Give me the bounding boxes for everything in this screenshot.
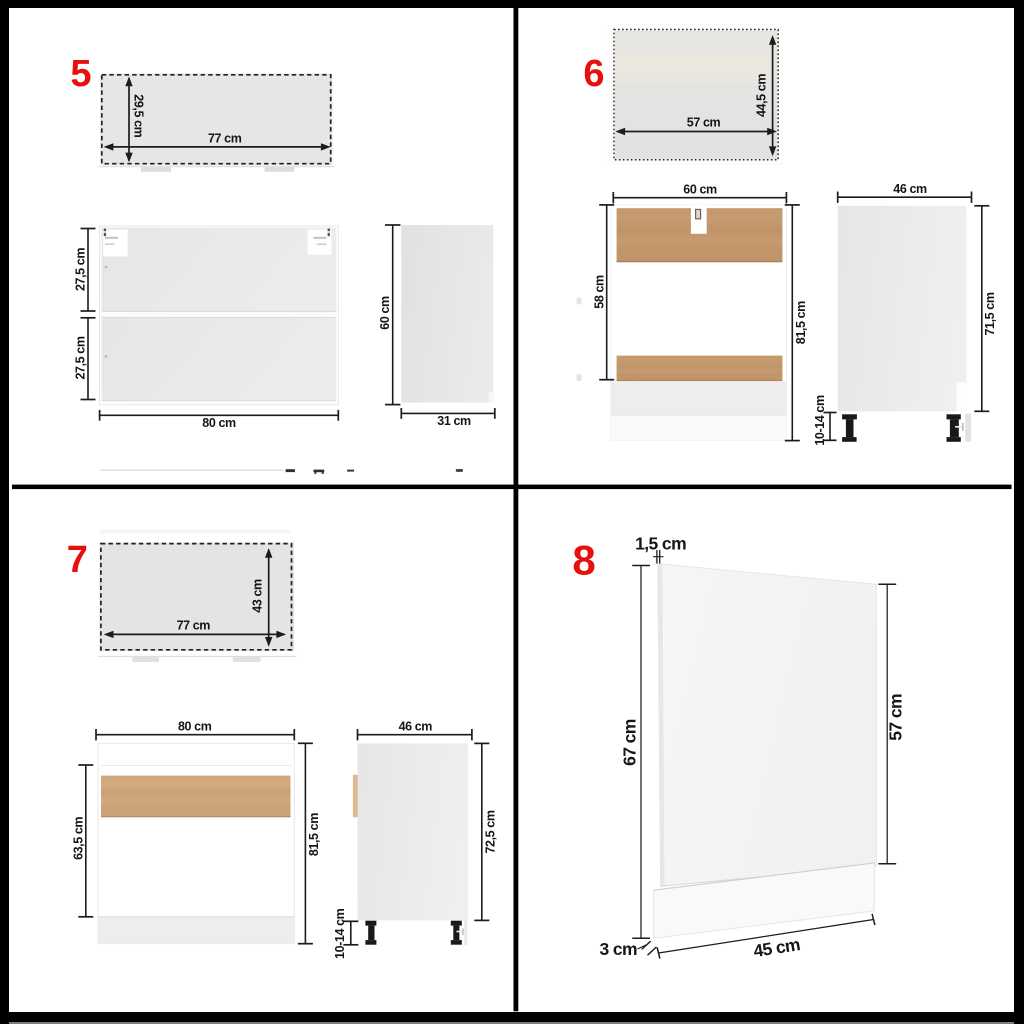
svg-text:57 cm: 57 cm — [687, 116, 721, 130]
svg-text:31 cm: 31 cm — [437, 414, 471, 428]
svg-text:29,5 cm: 29,5 cm — [132, 94, 146, 137]
svg-text:10-14 cm: 10-14 cm — [813, 395, 827, 446]
svg-text:46 cm: 46 cm — [893, 182, 927, 196]
svg-text:81,5 cm: 81,5 cm — [307, 813, 321, 856]
svg-text:77 cm: 77 cm — [208, 132, 242, 146]
svg-text:10-14 cm: 10-14 cm — [333, 908, 347, 959]
svg-text:71,5 cm: 71,5 cm — [983, 292, 997, 335]
svg-text:5: 5 — [70, 53, 91, 95]
svg-text:7: 7 — [67, 539, 88, 581]
svg-text:67 cm: 67 cm — [619, 719, 639, 766]
svg-text:6: 6 — [583, 53, 604, 95]
svg-text:77 cm: 77 cm — [177, 619, 211, 633]
svg-text:8: 8 — [572, 537, 595, 584]
svg-text:1,5 cm: 1,5 cm — [635, 533, 686, 553]
svg-text:27,5 cm: 27,5 cm — [74, 248, 88, 291]
svg-text:58 cm: 58 cm — [592, 275, 606, 309]
svg-text:60 cm: 60 cm — [683, 182, 717, 196]
svg-text:46 cm: 46 cm — [399, 719, 433, 733]
svg-text:3 cm: 3 cm — [599, 939, 637, 959]
svg-text:43 cm: 43 cm — [251, 579, 265, 613]
svg-text:44,5 cm: 44,5 cm — [754, 74, 768, 117]
svg-text:72,5 cm: 72,5 cm — [483, 810, 497, 853]
svg-text:27,5 cm: 27,5 cm — [74, 336, 88, 379]
svg-text:80 cm: 80 cm — [178, 719, 212, 733]
svg-text:81,5 cm: 81,5 cm — [794, 301, 808, 344]
svg-text:63,5 cm: 63,5 cm — [71, 817, 85, 860]
svg-text:57 cm: 57 cm — [885, 694, 905, 741]
svg-text:60 cm: 60 cm — [378, 296, 392, 330]
svg-text:80 cm: 80 cm — [202, 416, 236, 430]
